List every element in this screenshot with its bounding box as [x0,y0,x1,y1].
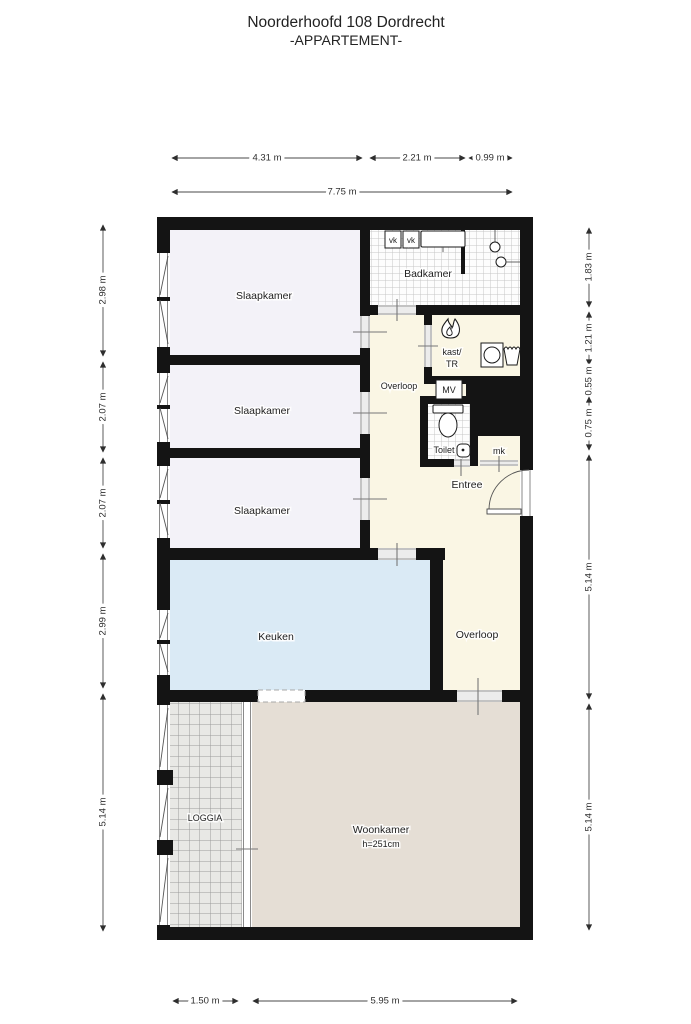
dimension-label: 5.14 m [584,802,595,831]
dimension-label: 0.55 m [584,366,595,395]
dimension-left-4: 2.99 m [98,554,109,688]
wall-slaap1-slaap2 [170,355,368,365]
dimension-label: 1.50 m [190,996,219,1007]
label-overloop-top: Overloop [381,381,418,391]
mv-label: MV [442,385,456,395]
dimension-label: 1.83 m [584,252,595,281]
dimension-right-3: 0.55 m [584,366,595,395]
vk-label: vk [407,236,416,245]
wall-keuken-overloop [430,548,443,702]
dimension-label: 2.21 m [402,153,431,164]
window-slaapkamer2-icon [157,373,170,442]
vk-cabinet-1-icon: vk [385,231,401,248]
wall-toilet-bottom [420,459,456,467]
window-slaapkamer1-icon [157,253,170,347]
wall-loggia-pier-1 [157,770,173,785]
wall-toilet-right [470,404,478,466]
label-overloop-bottom: Overloop [456,629,499,641]
dimension-top-2: 2.21 m [370,153,465,164]
label-woonkamer-height: h=251cm [362,839,399,849]
label-kast-line1: kast/ [442,347,462,357]
dimension-right-5: 5.14 m [584,455,595,699]
dimension-label: 1.21 m [584,323,595,352]
dimension-label: 0.99 m [475,153,504,164]
dimension-label: 4.31 m [252,153,281,164]
label-loggia: LOGGIA [188,813,223,823]
wall-exterior-bottom [157,927,533,940]
room-fills [170,230,520,927]
floorplan-canvas: Noorderhoofd 108 Dordrecht -APPARTEMENT- [0,0,691,1024]
dimension-label: 2.07 m [98,488,109,517]
vk-label: vk [389,236,398,245]
room-keuken [170,560,432,690]
label-slaapkamer-2: Slaapkamer [234,405,291,417]
window-keuken-icon [157,610,170,675]
room-woonkamer [252,702,520,927]
dimension-top-3: 0.99 m [469,153,512,164]
wall-exterior-right [520,217,533,940]
room-slaapkamer-3 [170,458,360,548]
door-leaf-icon [487,509,521,514]
corner-sink-icon [457,444,470,457]
mechanical-ventilation-box: MV [436,380,462,399]
label-toilet: Toilet [433,445,455,455]
dimension-right-6: 5.14 m [584,704,595,930]
wall-loggia-pier-2 [157,840,173,855]
dimension-top-total: 7.75 m [172,187,512,198]
wall-slaap2-slaap3 [170,448,368,458]
dimension-label: 5.14 m [584,562,595,591]
dimension-right-2: 1.21 m [584,312,595,365]
label-kast-line2: TR [446,359,458,369]
dimension-label: 5.95 m [370,996,399,1007]
dimension-top-1: 4.31 m [172,153,362,164]
dimension-label: 2.99 m [98,606,109,635]
laundry-tub-icon [504,347,520,365]
window-loggia-2-icon [157,785,170,840]
label-meterkast: mk [493,446,505,456]
dimension-label: 2.98 m [98,275,109,304]
window-loggia-1-icon [157,705,170,770]
dimension-label: 7.75 m [327,187,356,198]
page-title: Noorderhoofd 108 Dordrecht -APPARTEMENT- [247,14,445,48]
opening-keuken-woonkamer-dashed [258,690,305,702]
dimension-bottom-2: 5.95 m [253,996,517,1007]
dimension-left-5: 5.14 m [98,694,109,931]
dimension-label: 5.14 m [98,797,109,826]
label-slaapkamer-1: Slaapkamer [236,290,293,302]
title-subtitle: -APPARTEMENT- [290,32,403,48]
label-entree: Entree [452,479,483,491]
label-slaapkamer-3: Slaapkamer [234,505,291,517]
dimension-left-3: 2.07 m [98,458,109,548]
wall-exterior-top [157,217,533,230]
dimension-label: 2.07 m [98,392,109,421]
dimension-right-1: 1.83 m [584,228,595,307]
dimension-label: 0.75 m [584,408,595,437]
dimension-bottom-1: 1.50 m [173,996,238,1007]
title-address: Noorderhoofd 108 Dordrecht [247,14,445,31]
washing-machine-icon [481,343,503,367]
label-woonkamer: Woonkamer [353,824,410,836]
label-badkamer: Badkamer [404,268,452,280]
dimension-right-4: 0.75 m [584,397,595,450]
dimension-left-1: 2.98 m [98,225,109,356]
window-loggia-3-icon [157,855,170,925]
wall-toilet-left [420,396,428,467]
dimension-left-2: 2.07 m [98,362,109,452]
window-slaapkamer3-icon [157,466,170,538]
vk-cabinet-2-icon: vk [403,231,419,248]
label-keuken: Keuken [258,631,294,643]
